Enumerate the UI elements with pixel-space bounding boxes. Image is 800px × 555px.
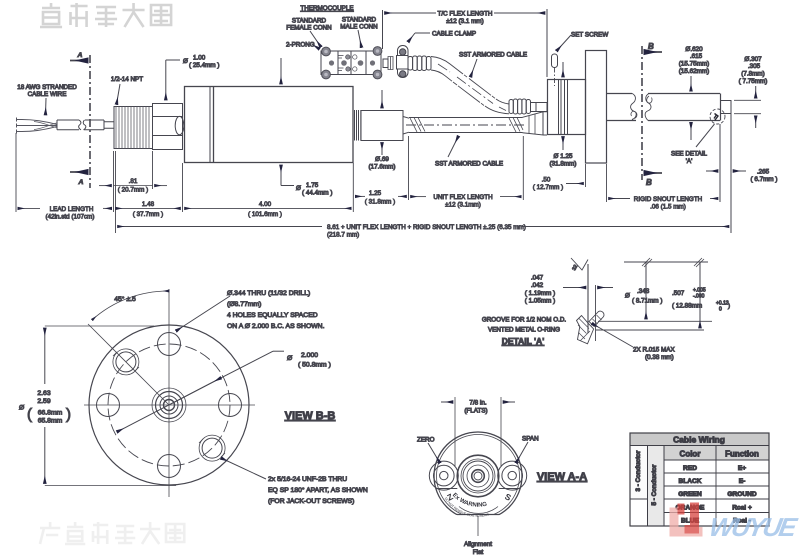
svg-text:A: A [77,52,83,59]
svg-text:CABLE CLAMP: CABLE CLAMP [432,31,476,38]
svg-text:2X R.015 MAX: 2X R.015 MAX [633,347,675,354]
svg-text:( 31.8mm ): ( 31.8mm ) [365,199,395,206]
svg-text:SPAN: SPAN [522,436,539,443]
svg-text:4.00: 4.00 [259,201,272,208]
svg-text:): ) [66,406,71,423]
svg-text:): ) [728,303,730,310]
svg-text:( 12.88mm: ( 12.88mm [672,303,702,310]
svg-text:.81: .81 [129,178,138,185]
svg-text:( 8.71mm ): ( 8.71mm ) [632,298,662,305]
svg-text:.507: .507 [672,290,685,297]
svg-text:45° ±.5: 45° ±.5 [114,295,136,303]
svg-text:SEE DETAIL: SEE DETAIL [671,151,707,158]
svg-text:( 44.4mm ): ( 44.4mm ) [302,190,332,197]
svg-text:B: B [648,42,654,51]
svg-text:Ø.344 THRU (11/32 DRILL): Ø.344 THRU (11/32 DRILL) [227,290,310,297]
svg-text:VIEW B-B: VIEW B-B [285,410,336,422]
svg-text:Flat: Flat [473,549,484,555]
svg-text:(15.62mm): (15.62mm) [679,68,709,75]
svg-text:1.25: 1.25 [369,190,382,197]
svg-text:( 101.6mm ): ( 101.6mm ) [248,211,282,218]
svg-text:(FOR JACK-OUT SCREWS): (FOR JACK-OUT SCREWS) [268,498,354,505]
svg-text:THERMOCOUPLE: THERMOCOUPLE [300,5,353,12]
svg-text:E+: E+ [738,465,746,472]
svg-text:GREEN: GREEN [678,491,702,498]
svg-text:SET SCREW: SET SCREW [571,32,608,39]
svg-text:VIEW A-A: VIEW A-A [537,471,587,483]
svg-text:Ø: Ø [19,405,25,412]
svg-text:0: 0 [719,307,722,313]
svg-text:(31.8mm): (31.8mm) [550,161,577,168]
svg-text:.305: .305 [748,63,761,70]
svg-text:WUYUE: WUYUE [707,512,800,542]
svg-text:(17.6mm): (17.6mm) [369,164,396,171]
svg-text:±12 (3.1mm): ±12 (3.1mm) [445,202,481,209]
svg-text:(0.38 mm): (0.38 mm) [645,354,674,361]
svg-text:2-PRONG: 2-PRONG [286,42,315,49]
svg-text:ON A Ø 2.000 B.C. AS SHOWN.: ON A Ø 2.000 B.C. AS SHOWN. [227,323,325,330]
svg-text:3 - Conductor: 3 - Conductor [635,450,642,491]
svg-text:STANDARD: STANDARD [342,17,377,24]
svg-text:-.000: -.000 [693,294,705,300]
svg-text:RED: RED [683,465,697,472]
svg-text:7/8 in.: 7/8 in. [469,400,486,407]
svg-text:(: ( [27,406,32,423]
svg-text:1.75: 1.75 [306,182,319,189]
svg-text:(218.7 mm): (218.7 mm) [327,232,359,239]
svg-text:DETAIL 'A': DETAIL 'A' [502,336,544,346]
svg-text:.042: .042 [531,282,544,289]
svg-text:1/2-14 NPT: 1/2-14 NPT [111,76,143,83]
svg-text:SST ARMORED CABLE: SST ARMORED CABLE [435,161,503,168]
svg-text:.50: .50 [542,177,551,184]
svg-text:2.000: 2.000 [301,352,318,359]
svg-text:MALE CONN: MALE CONN [340,24,378,31]
svg-text:( 1.19mm ): ( 1.19mm ) [525,290,555,297]
svg-text:.265: .265 [757,169,770,176]
svg-text:65.8mm: 65.8mm [38,418,63,425]
svg-text:Color: Color [680,450,701,459]
svg-text:ZERO: ZERO [417,437,435,444]
svg-text:1.48: 1.48 [142,201,155,208]
svg-text:( 20.7mm ): ( 20.7mm ) [118,187,148,194]
svg-text:(Ø8.77mm): (Ø8.77mm) [227,301,261,308]
svg-text:.615: .615 [690,53,703,60]
svg-text:( 6.7mm ): ( 6.7mm ) [751,176,778,183]
svg-text:Ø.307: Ø.307 [744,56,762,63]
svg-text:8.61 + UNIT FLEX LENGTH + RIGI: 8.61 + UNIT FLEX LENGTH + RIGID SNOUT LE… [327,224,526,231]
svg-text:( 50.8mm ): ( 50.8mm ) [298,362,331,369]
svg-text:Cable Wiring: Cable Wiring [673,435,725,445]
svg-text:2.59: 2.59 [37,398,50,405]
svg-text:2.63: 2.63 [37,390,50,397]
svg-text:18 AWG STRANDED: 18 AWG STRANDED [17,84,77,91]
svg-text:( 12.7mm ): ( 12.7mm ) [533,184,563,191]
svg-text:Ø: Ø [287,355,293,362]
svg-text:Rcal +: Rcal + [732,505,752,512]
svg-text:STANDARD: STANDARD [292,18,327,25]
svg-text:1.00: 1.00 [193,55,206,62]
svg-text:UNIT FLEX LENGTH: UNIT FLEX LENGTH [433,194,493,201]
svg-text:GROUND: GROUND [727,491,757,498]
svg-text:.343: .343 [637,288,650,295]
svg-text:+0.13: +0.13 [716,301,729,307]
svg-text:2x 5/16-24 UNF-2B THRU: 2x 5/16-24 UNF-2B THRU [268,476,347,483]
svg-text:SST ARMORED CABLE: SST ARMORED CABLE [459,52,527,59]
svg-text:5 - Conductor: 5 - Conductor [651,464,658,505]
svg-text:'A': 'A' [686,158,693,165]
svg-text:CABLE WIRE: CABLE WIRE [28,91,67,98]
svg-text:Function: Function [725,450,759,459]
svg-text:Ø.620: Ø.620 [685,46,703,53]
svg-text:4 HOLES EQUALLY SPACED: 4 HOLES EQUALLY SPACED [227,312,318,319]
svg-text:(15.75mm): (15.75mm) [679,61,709,68]
svg-text:RIGID SNOUT LENGTH: RIGID SNOUT LENGTH [634,196,703,203]
svg-text:( 1.05mm ): ( 1.05mm ) [525,298,555,305]
svg-text:T/C FLEX LENGTH: T/C FLEX LENGTH [438,11,493,18]
svg-text:E-: E- [739,478,746,485]
svg-text:( 25.4mm ): ( 25.4mm ) [189,62,219,69]
svg-text:Ø 1.25: Ø 1.25 [554,153,573,160]
svg-text:EQ SP 180° APART, AS SHOWN: EQ SP 180° APART, AS SHOWN [268,486,368,494]
svg-text:LEAD LENGTH: LEAD LENGTH [50,206,94,213]
svg-text:A: A [78,179,84,186]
svg-text:GROOVE FOR 1/2 NOM O.D.: GROOVE FOR 1/2 NOM O.D. [482,317,567,324]
svg-text:(FLATS): (FLATS) [464,408,487,415]
svg-text:Ø: Ø [183,58,188,65]
svg-text:.047: .047 [531,275,544,282]
svg-text:66.8mm: 66.8mm [38,410,63,417]
svg-text:( 37.7mm ): ( 37.7mm ) [133,211,163,218]
svg-text:Alignment: Alignment [464,541,492,548]
svg-text:Ø: Ø [296,185,301,192]
svg-text:±12 (3.1 mm): ±12 (3.1 mm) [446,18,483,25]
svg-text:( 7.75mm): ( 7.75mm) [739,78,768,85]
svg-text:VENTED METAL O-RING: VENTED METAL O-RING [488,327,560,334]
svg-text:Ø: Ø [625,293,630,300]
svg-text:B: B [646,178,652,187]
svg-text:BLACK: BLACK [678,478,701,485]
svg-text:(42in.std (107cm): (42in.std (107cm) [46,214,95,221]
svg-text:(7.8mm): (7.8mm) [741,71,764,78]
svg-text:.06 (1.5 mm): .06 (1.5 mm) [650,204,686,211]
svg-text:FEMALE CONN: FEMALE CONN [286,25,332,32]
svg-text:Ø.69: Ø.69 [375,156,389,163]
